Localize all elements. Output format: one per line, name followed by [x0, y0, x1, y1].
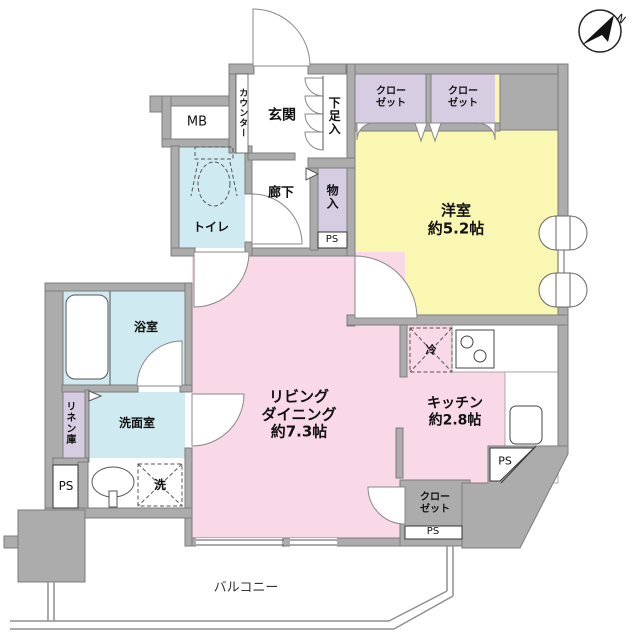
label-ps-washroom: PS	[59, 479, 74, 493]
label-washroom: 洗面室	[119, 416, 155, 430]
label-shoe-storage: 下足入	[327, 97, 341, 136]
label-balcony: バルコニー	[214, 580, 279, 595]
label-closet-right: クロー ゼット	[448, 86, 478, 110]
casement-arc	[570, 273, 587, 307]
label-mb: MB	[187, 114, 207, 129]
window-mullion	[558, 250, 564, 273]
floor-plan-drawing: N	[0, 0, 640, 640]
label-toilet: トイレ	[193, 220, 229, 234]
washbasin-stand	[109, 491, 117, 507]
stove	[456, 330, 494, 368]
label-closet-bottom: クロー ゼット	[420, 492, 450, 516]
bedroom-window	[556, 273, 570, 307]
label-living-dining: リビング ダイニング 約7.3帖	[261, 388, 336, 441]
label-refrigerator: 冷	[426, 345, 437, 358]
label-western-room: 洋室 約5.2帖	[428, 202, 485, 237]
front-door-arc	[253, 9, 310, 66]
bathtub	[66, 295, 108, 379]
balcony-window	[196, 538, 284, 547]
kitchen-sink	[510, 406, 542, 444]
floor-plan: N MB カウンター 玄関 下足入 クロー ゼット クロー ゼット 洋室 約5.…	[0, 0, 640, 640]
bedroom-window	[556, 216, 570, 250]
label-ps-hallway: PS	[326, 234, 338, 246]
label-washer: 洗	[154, 478, 166, 492]
label-storage: 物入	[325, 184, 339, 210]
label-ps-kitchen: PS	[498, 456, 512, 469]
label-kitchen: キッチン 約2.8帖	[427, 395, 483, 428]
balcony-window	[290, 538, 337, 547]
casement-arc	[570, 216, 587, 250]
label-entrance: 玄関	[268, 108, 296, 125]
label-ps-closet: PS	[427, 526, 439, 538]
label-hallway: 廊下	[268, 185, 294, 200]
compass: N	[579, 10, 628, 52]
label-linen-closet: リネン庫	[63, 401, 75, 445]
label-bathroom: 浴室	[134, 320, 158, 334]
label-counter: カウンター	[237, 88, 248, 138]
label-closet-left: クロー ゼット	[376, 86, 406, 110]
